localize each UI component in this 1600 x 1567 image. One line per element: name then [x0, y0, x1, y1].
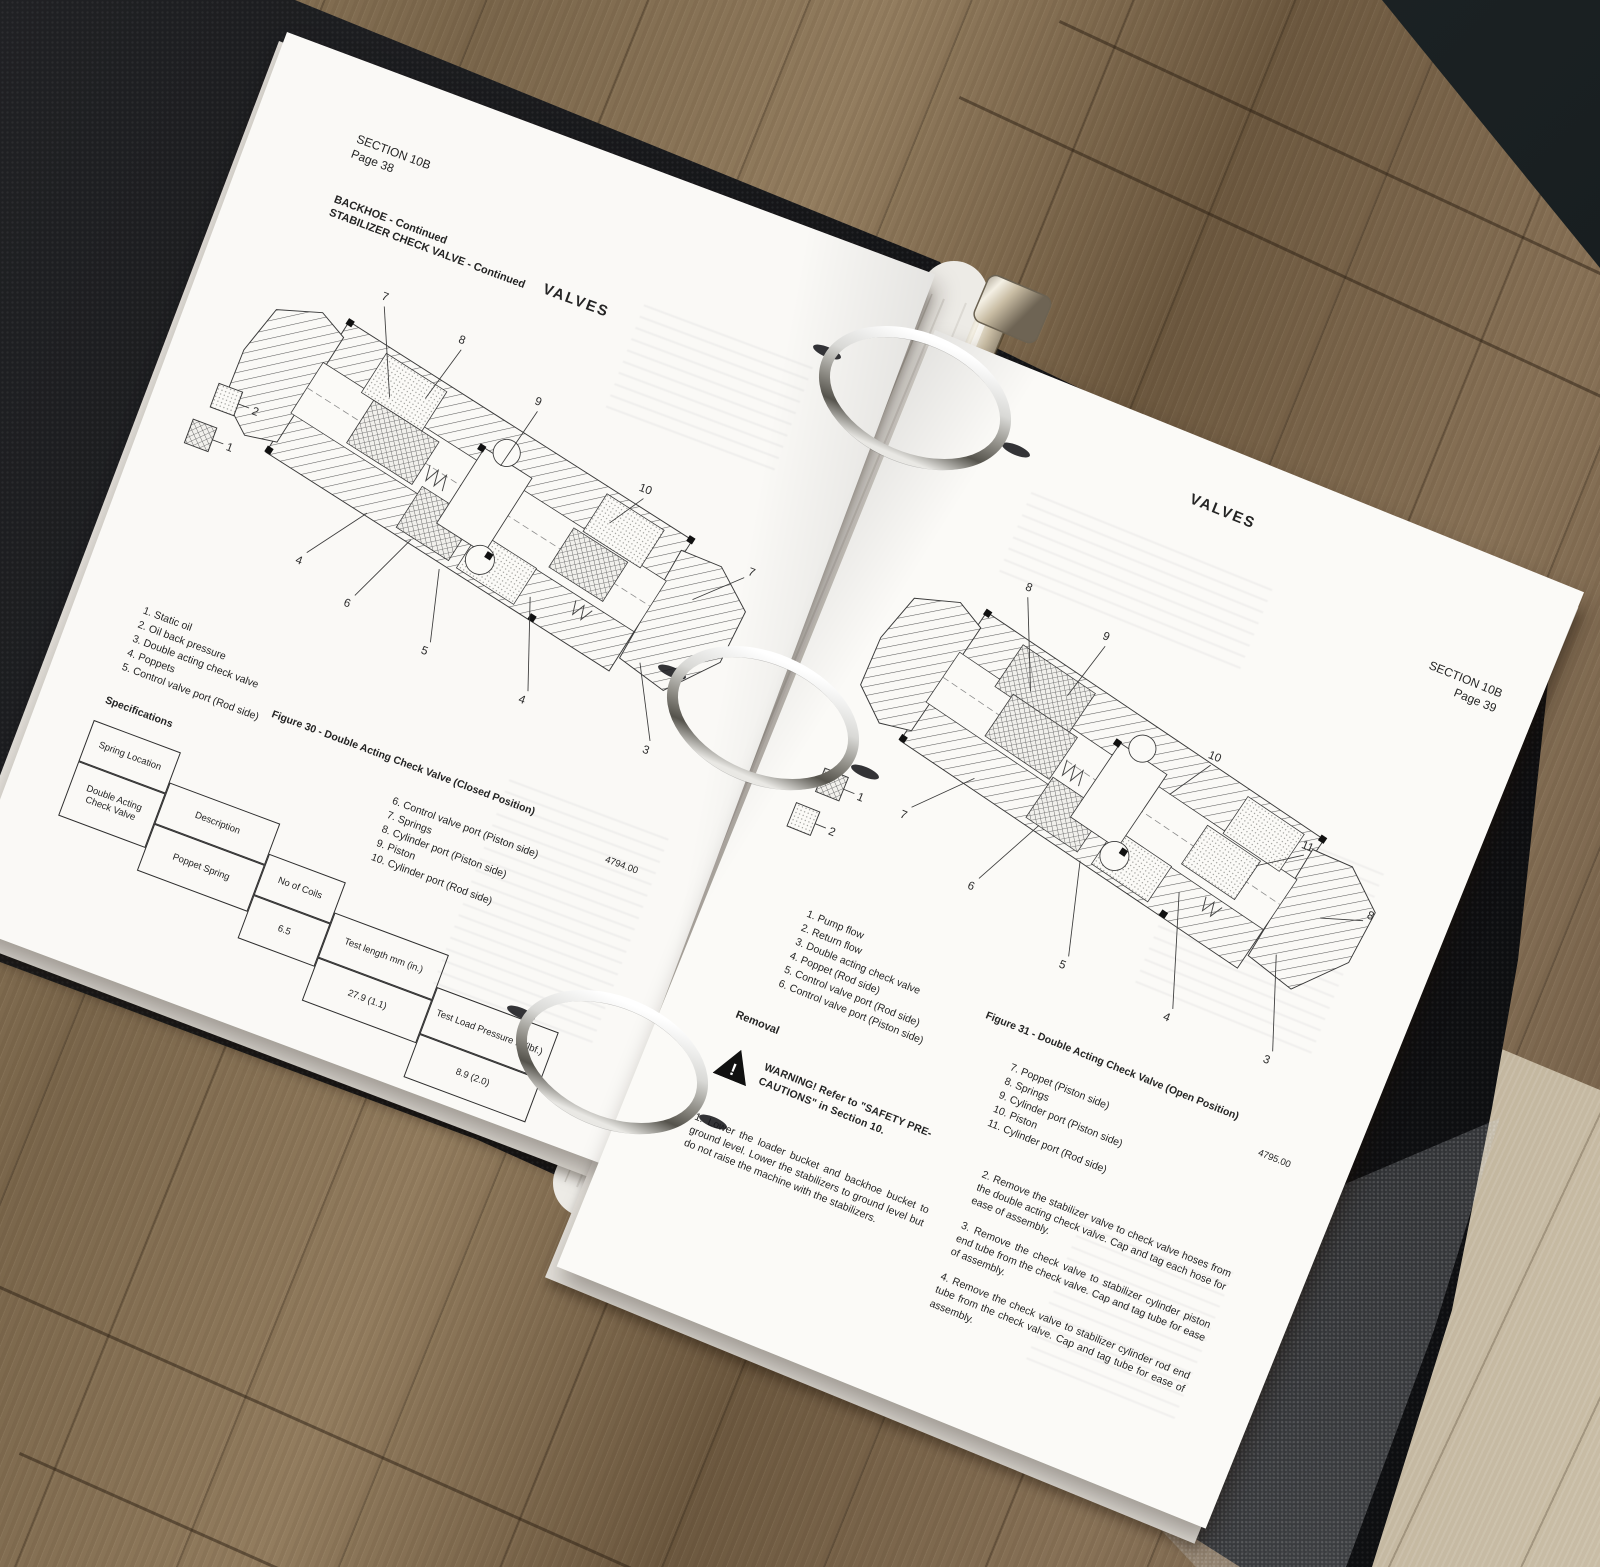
legend-number: 1: [855, 790, 866, 804]
callout-number: 4: [294, 553, 305, 568]
callout-number: 6: [966, 879, 977, 893]
legend-swatch-pump-flow: [816, 768, 849, 801]
callout-number: 5: [1057, 958, 1068, 972]
callout-number: 4: [517, 692, 528, 707]
warning-exclamation: !: [727, 1061, 739, 1080]
page-section-header: SECTION 10B Page 39: [1421, 658, 1505, 716]
callout-number: 7: [746, 565, 757, 579]
callout-number: 3: [641, 743, 652, 757]
warning-triangle-icon: !: [713, 1043, 758, 1086]
callout-number: 7: [898, 808, 909, 822]
page-title: VALVES: [1187, 491, 1258, 533]
legend-swatch-oil-back-pressure: [184, 419, 216, 451]
figure-31-item-list-7-11: 7. Poppet (Piston side)8. Springs9. Cyli…: [985, 1060, 1136, 1179]
legend-number: 1: [224, 440, 235, 454]
callout-number: 8: [1023, 580, 1034, 594]
page-title: VALVES: [540, 281, 611, 321]
figure-31-number: 4795.00: [1256, 1147, 1292, 1170]
legend-number: 2: [827, 825, 838, 839]
callout-number: 7: [380, 290, 391, 304]
warning-text: WARNING! Refer to "SAFETY PRE- CAUTIONS"…: [756, 1060, 934, 1156]
callout-number: 4: [1161, 1010, 1172, 1025]
specifications-heading: Specifications: [103, 693, 175, 732]
callout-number: 3: [1261, 1053, 1272, 1067]
callout-number: 9: [533, 395, 544, 409]
callout-number: 9: [1101, 629, 1112, 643]
legend-swatch-return-flow: [787, 803, 820, 836]
page-section-header: SECTION 10B Page 38: [349, 132, 433, 189]
binder-photo-scene: SECTION 10B Page 38 BACKHOE - Continued …: [0, 0, 1600, 1567]
callout-number: 10: [637, 481, 654, 498]
removal-heading: Removal: [733, 1008, 781, 1040]
callout-number: 6: [342, 596, 353, 610]
callout-number: 8: [457, 333, 468, 347]
callout-number: 5: [419, 644, 430, 658]
